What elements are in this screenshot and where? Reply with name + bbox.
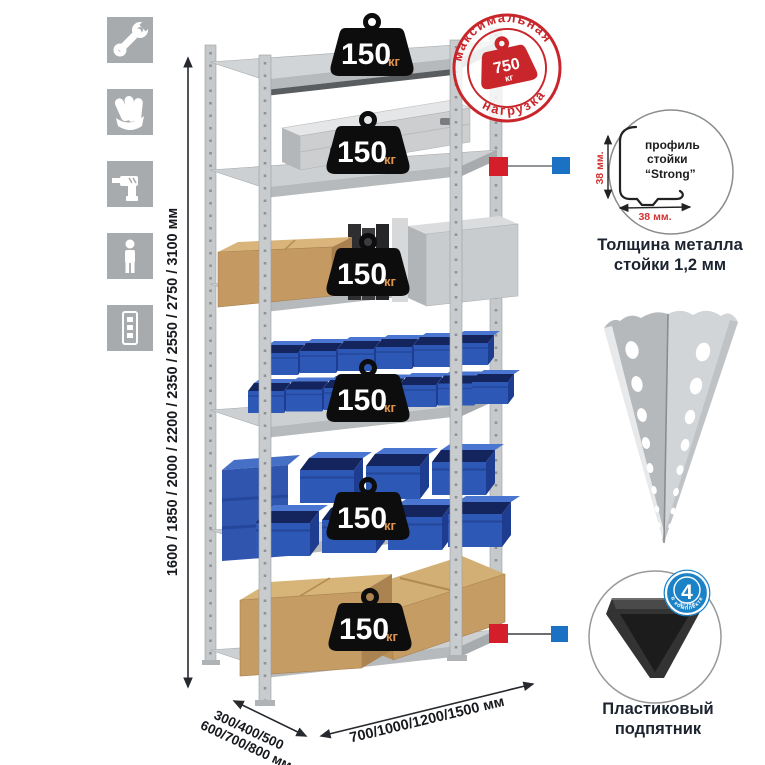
thickness-caption-line1: Толщина металла — [597, 236, 743, 254]
product-infographic: 150 кг — [0, 0, 765, 765]
thickness-caption-line2: стойки 1,2 мм — [614, 256, 726, 274]
width-label: 700/1000/1200/1500 мм — [348, 694, 506, 747]
depth-dimension: 300/400/500 600/700/800 мм — [198, 701, 306, 765]
weight-badge-shelf1 — [330, 16, 413, 77]
detail-connector-top — [489, 157, 570, 176]
profile-label-3: “Strong” — [645, 167, 696, 181]
foot-caption-line1: Пластиковый — [602, 700, 713, 718]
profile-detail-circle: 38 мм. 38 мм. профиль стойки “Strong” — [594, 110, 733, 234]
rack-icon — [107, 305, 153, 351]
foot-detail-circle: 4 штуки в комплекте — [589, 570, 721, 703]
metal-cabinet — [408, 216, 518, 306]
profile-dim-vertical: 38 мм. — [594, 151, 606, 184]
included-count-badge: 4 штуки в комплекте — [664, 570, 710, 616]
drill-icon — [107, 161, 153, 207]
person-icon — [107, 233, 153, 279]
height-dimension: 1600 / 1850 / 2000 / 2200 / 2350 / 2550 … — [165, 58, 188, 687]
metal-thickness-caption: Толщина металла стойки 1,2 мм — [597, 236, 743, 274]
profile-label-1: профиль — [645, 138, 700, 152]
upright-profile-image — [604, 311, 738, 543]
gloves-icon — [107, 89, 153, 135]
height-dimension-label: 1600 / 1850 / 2000 / 2200 / 2350 / 2550 … — [165, 208, 181, 576]
profile-label-2: стойки — [647, 152, 687, 166]
detail-connector-bottom — [489, 624, 568, 643]
profile-dim-horizontal: 38 мм. — [638, 211, 671, 223]
plastic-foot-caption: Пластиковый подпятник — [602, 700, 713, 738]
icons-column — [107, 17, 153, 351]
wrench-icon — [107, 17, 153, 63]
infographic-canvas: 150 кг — [0, 0, 765, 765]
foot-caption-line2: подпятник — [615, 720, 702, 738]
width-dimension: 700/1000/1200/1500 мм — [321, 684, 533, 746]
